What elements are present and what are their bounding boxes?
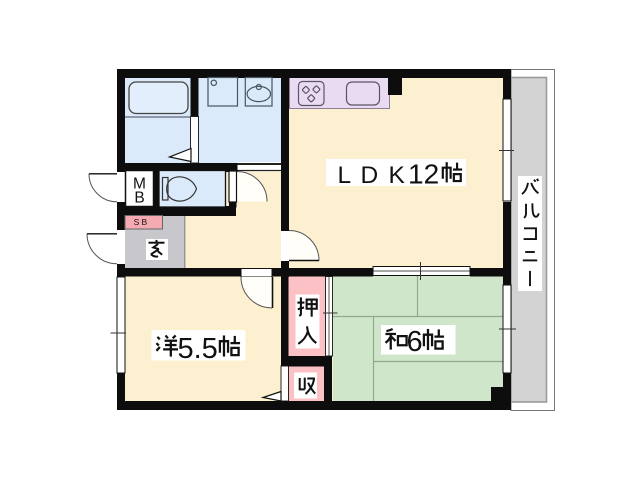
svg-text:L: L — [338, 162, 352, 189]
svg-text:6: 6 — [407, 326, 423, 358]
svg-text:B: B — [134, 190, 144, 207]
svg-text:K: K — [389, 162, 406, 189]
svg-text:SB: SB — [134, 217, 150, 227]
svg-text:5.5: 5.5 — [178, 333, 218, 365]
svg-text:D: D — [361, 162, 379, 189]
svg-text:12: 12 — [408, 159, 439, 190]
